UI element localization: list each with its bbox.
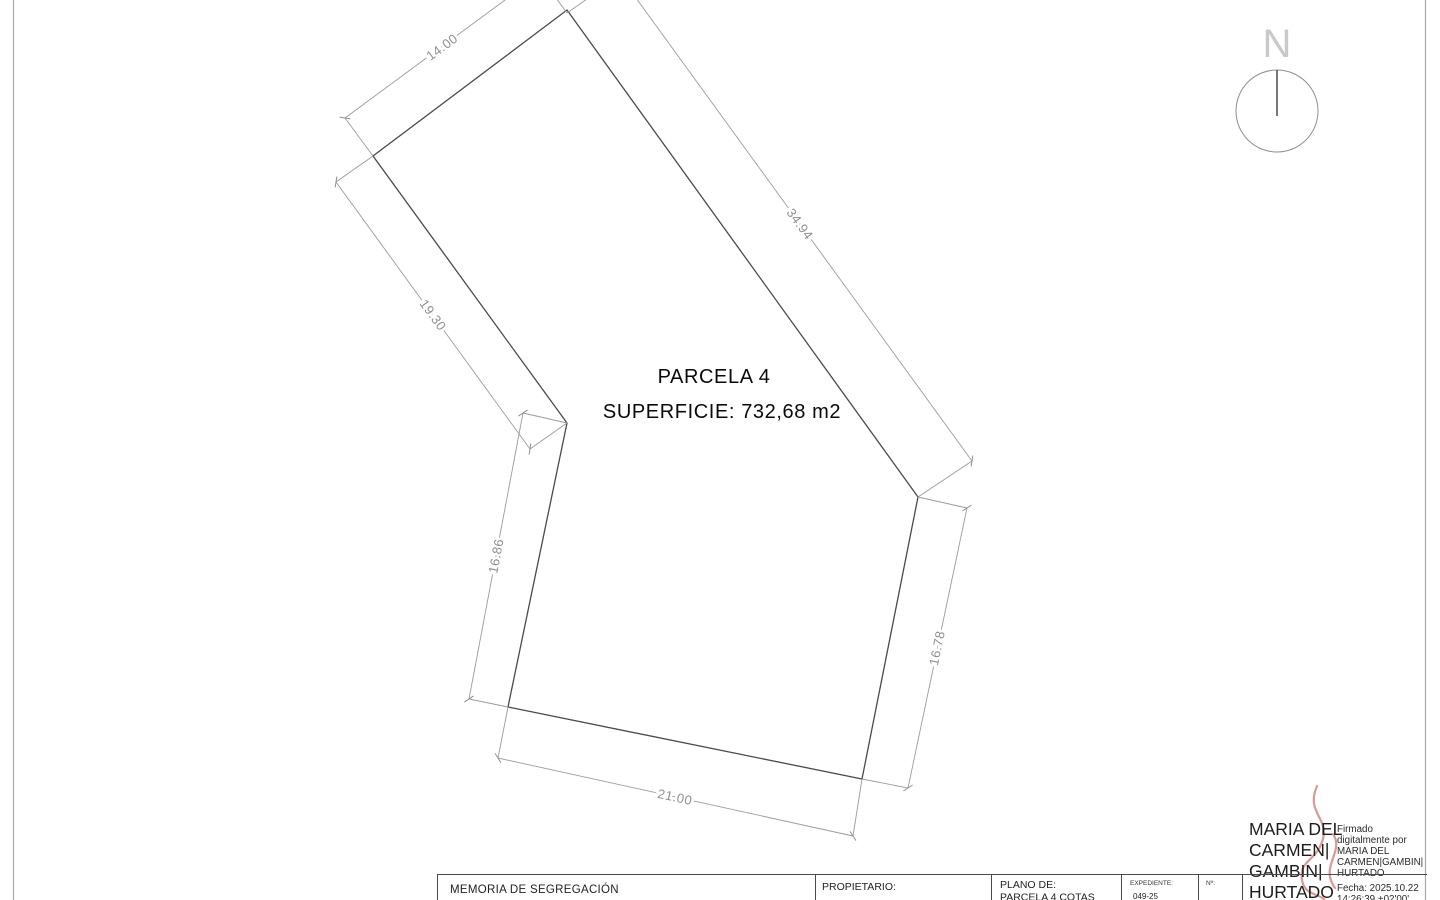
signature-detail-line: Firmado [1337,824,1373,835]
parcel-area: SUPERFICIE: 732,68 m2 [603,401,841,423]
extension-line [469,699,508,707]
dimension-label: 19.30 [417,296,450,333]
signature-detail-line: HURTADO [1337,868,1385,879]
signature-details: Firmado digitalmente por MARIA DEL CARME… [1337,824,1423,900]
dimension-lower-left: 16.86 [464,410,567,707]
plano-label: PLANO DE: [1000,879,1056,891]
extension-line [498,707,508,758]
dimension-lower-right: 16.78 [862,497,972,791]
dimension-label: 16.86 [485,537,506,574]
plan-sheet: N 14.00 34.94 19.30 16.86 [0,0,1440,900]
expediente-label: EXPEDIENTE: [1130,880,1173,887]
signature-name-line: HURTADO [1249,882,1334,900]
dimension-line [345,0,539,118]
signature-flourish-icon [1330,834,1337,888]
propietario-label: PROPIETARIO: [822,881,896,893]
extension-line [918,497,967,508]
extension-line [853,779,862,836]
north-label: N [1263,22,1292,66]
extension-line [530,423,567,449]
extension-line [567,0,620,13]
signature-detail-line: 14:26:39 +02'00' [1337,894,1409,900]
extension-line [539,0,567,13]
extension-line [336,156,373,182]
memoria-label: MEMORIA DE SEGREGACIÓN [450,883,619,896]
dimension-label: 16.78 [926,629,948,666]
dimension-label: 14.00 [423,31,460,64]
signature-detail-line: Fecha: 2025.10.22 [1337,883,1419,894]
plano-value: PARCELA 4 COTAS [1000,892,1095,900]
signature-name-line: MARIA DEL [1249,819,1343,839]
extension-line [862,779,908,788]
signature-detail-line: digitalmente por [1337,835,1407,846]
dimension-upper-left: 19.30 [335,156,567,454]
dimension-label: 21.00 [656,786,693,808]
signature-name: MARIA DEL CARMEN| GAMBIN| HURTADO [1249,819,1343,900]
parcel-title: PARCELA 4 [658,366,771,388]
signature-name-line: GAMBIN| [1249,861,1323,881]
parcel-outline [373,10,918,779]
dimension-label: 34.94 [784,205,817,242]
dimension-bottom: 21.00 [495,707,862,841]
signature-detail-line: MARIA DEL [1337,846,1390,857]
signature-detail-line: CARMEN|GAMBIN| [1337,857,1423,868]
dimension-top: 14.00 [340,0,567,156]
extension-line [345,118,373,156]
numero-label: Nº: [1206,880,1215,887]
expediente-value: 049-25 [1133,892,1158,900]
extension-line [918,461,972,497]
north-indicator: N [1236,22,1318,152]
signature-name-line: CARMEN| [1249,840,1329,860]
